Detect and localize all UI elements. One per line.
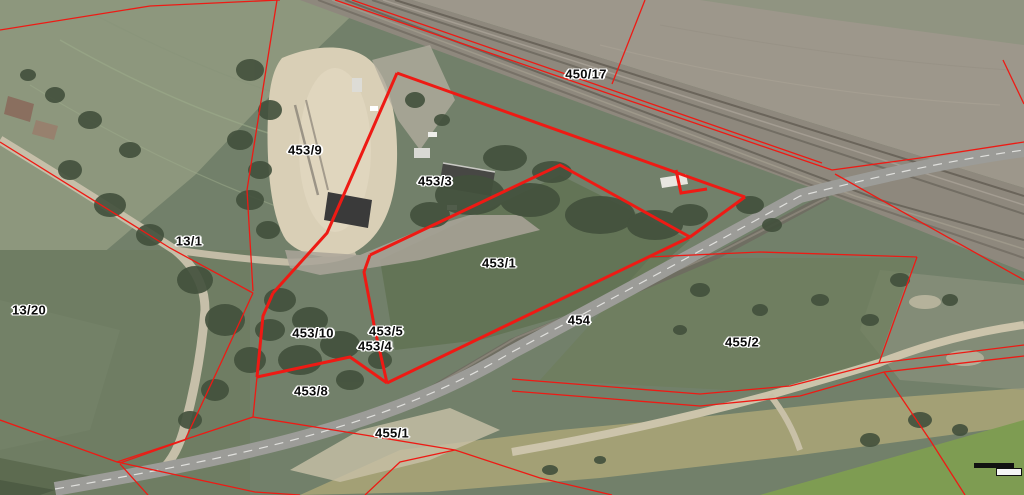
scale-bar-segment (996, 468, 1022, 476)
parcel-label: 450/17 (565, 67, 607, 82)
parcel-label: 13/20 (12, 303, 46, 318)
parcel-label: 453/8 (294, 384, 328, 399)
aerial-photo-layer (0, 0, 1024, 495)
parcel-label: 453/9 (288, 143, 322, 158)
parcel-label: 453/1 (482, 256, 516, 271)
parcel-label: 453/3 (418, 174, 452, 189)
parcel-label: 13/1 (176, 234, 203, 249)
parcel-label: 453/10 (292, 326, 334, 341)
parcel-label: 453/5 (369, 324, 403, 339)
parcel-label: 455/2 (725, 335, 759, 350)
cadastral-map[interactable]: 450/17 453/9 453/3 13/1 453/1 13/20 454 … (0, 0, 1024, 495)
parcel-label: 453/4 (358, 339, 392, 354)
parcel-label: 454 (568, 313, 591, 328)
map-scale-bar (974, 463, 1020, 475)
parcel-label: 455/1 (375, 426, 409, 441)
